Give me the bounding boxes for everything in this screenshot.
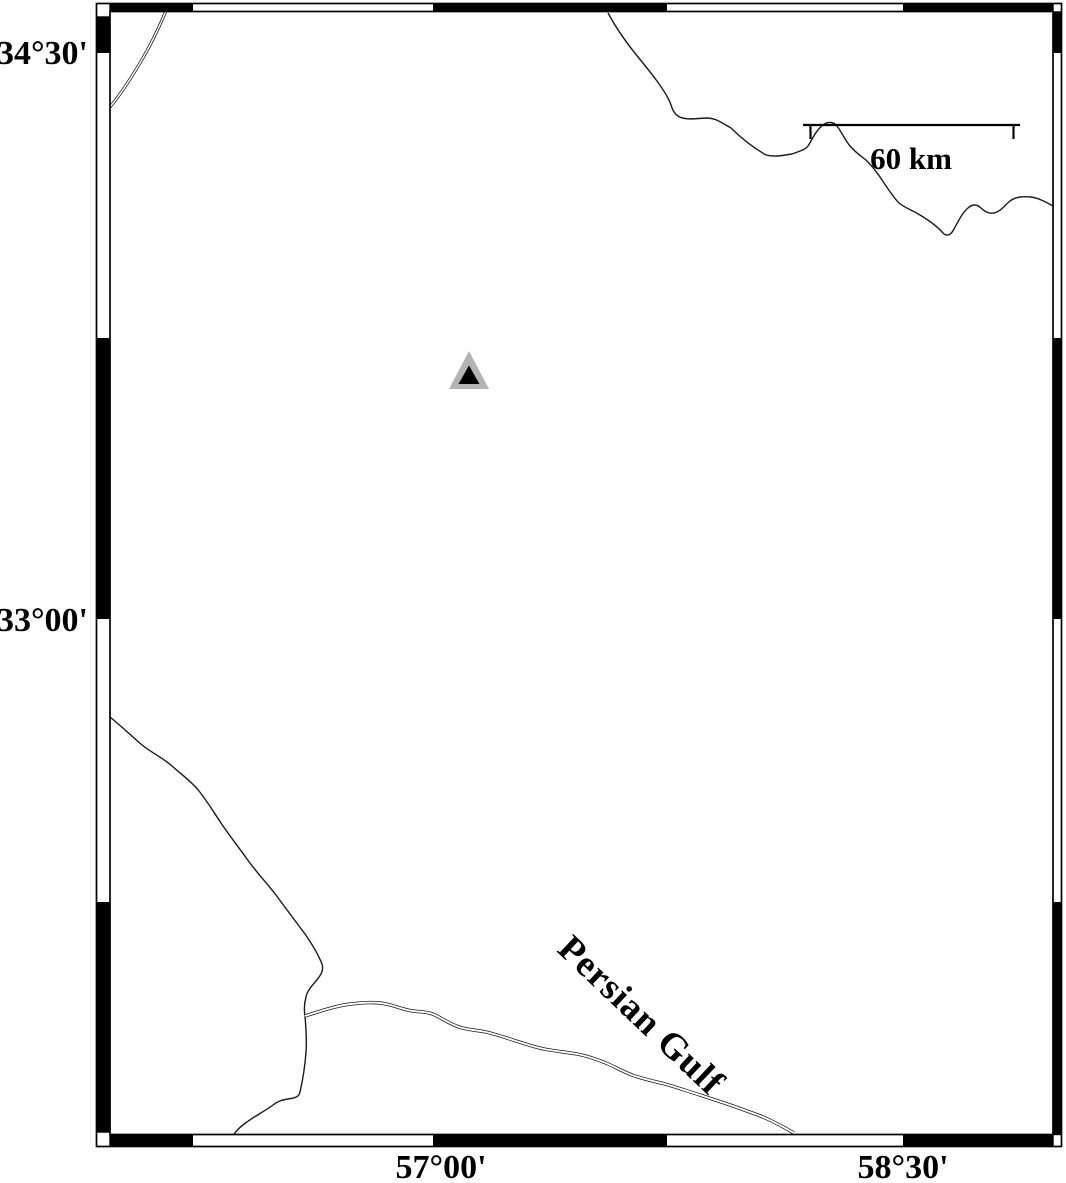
longitude-label-58-30: 58°30' (857, 1149, 948, 1183)
scale-bar-label: 60 km (870, 141, 952, 176)
latitude-label-33-00: 33°00' (0, 602, 88, 639)
latitude-label-34-30: 34°30' (0, 35, 88, 72)
longitude-label-57-00: 57°00' (395, 1149, 486, 1183)
map-svg: 60 km Persian Gulf (0, 0, 1066, 1183)
map-background (0, 0, 1066, 1183)
map-canvas: 60 km Persian Gulf (0, 0, 1066, 1183)
